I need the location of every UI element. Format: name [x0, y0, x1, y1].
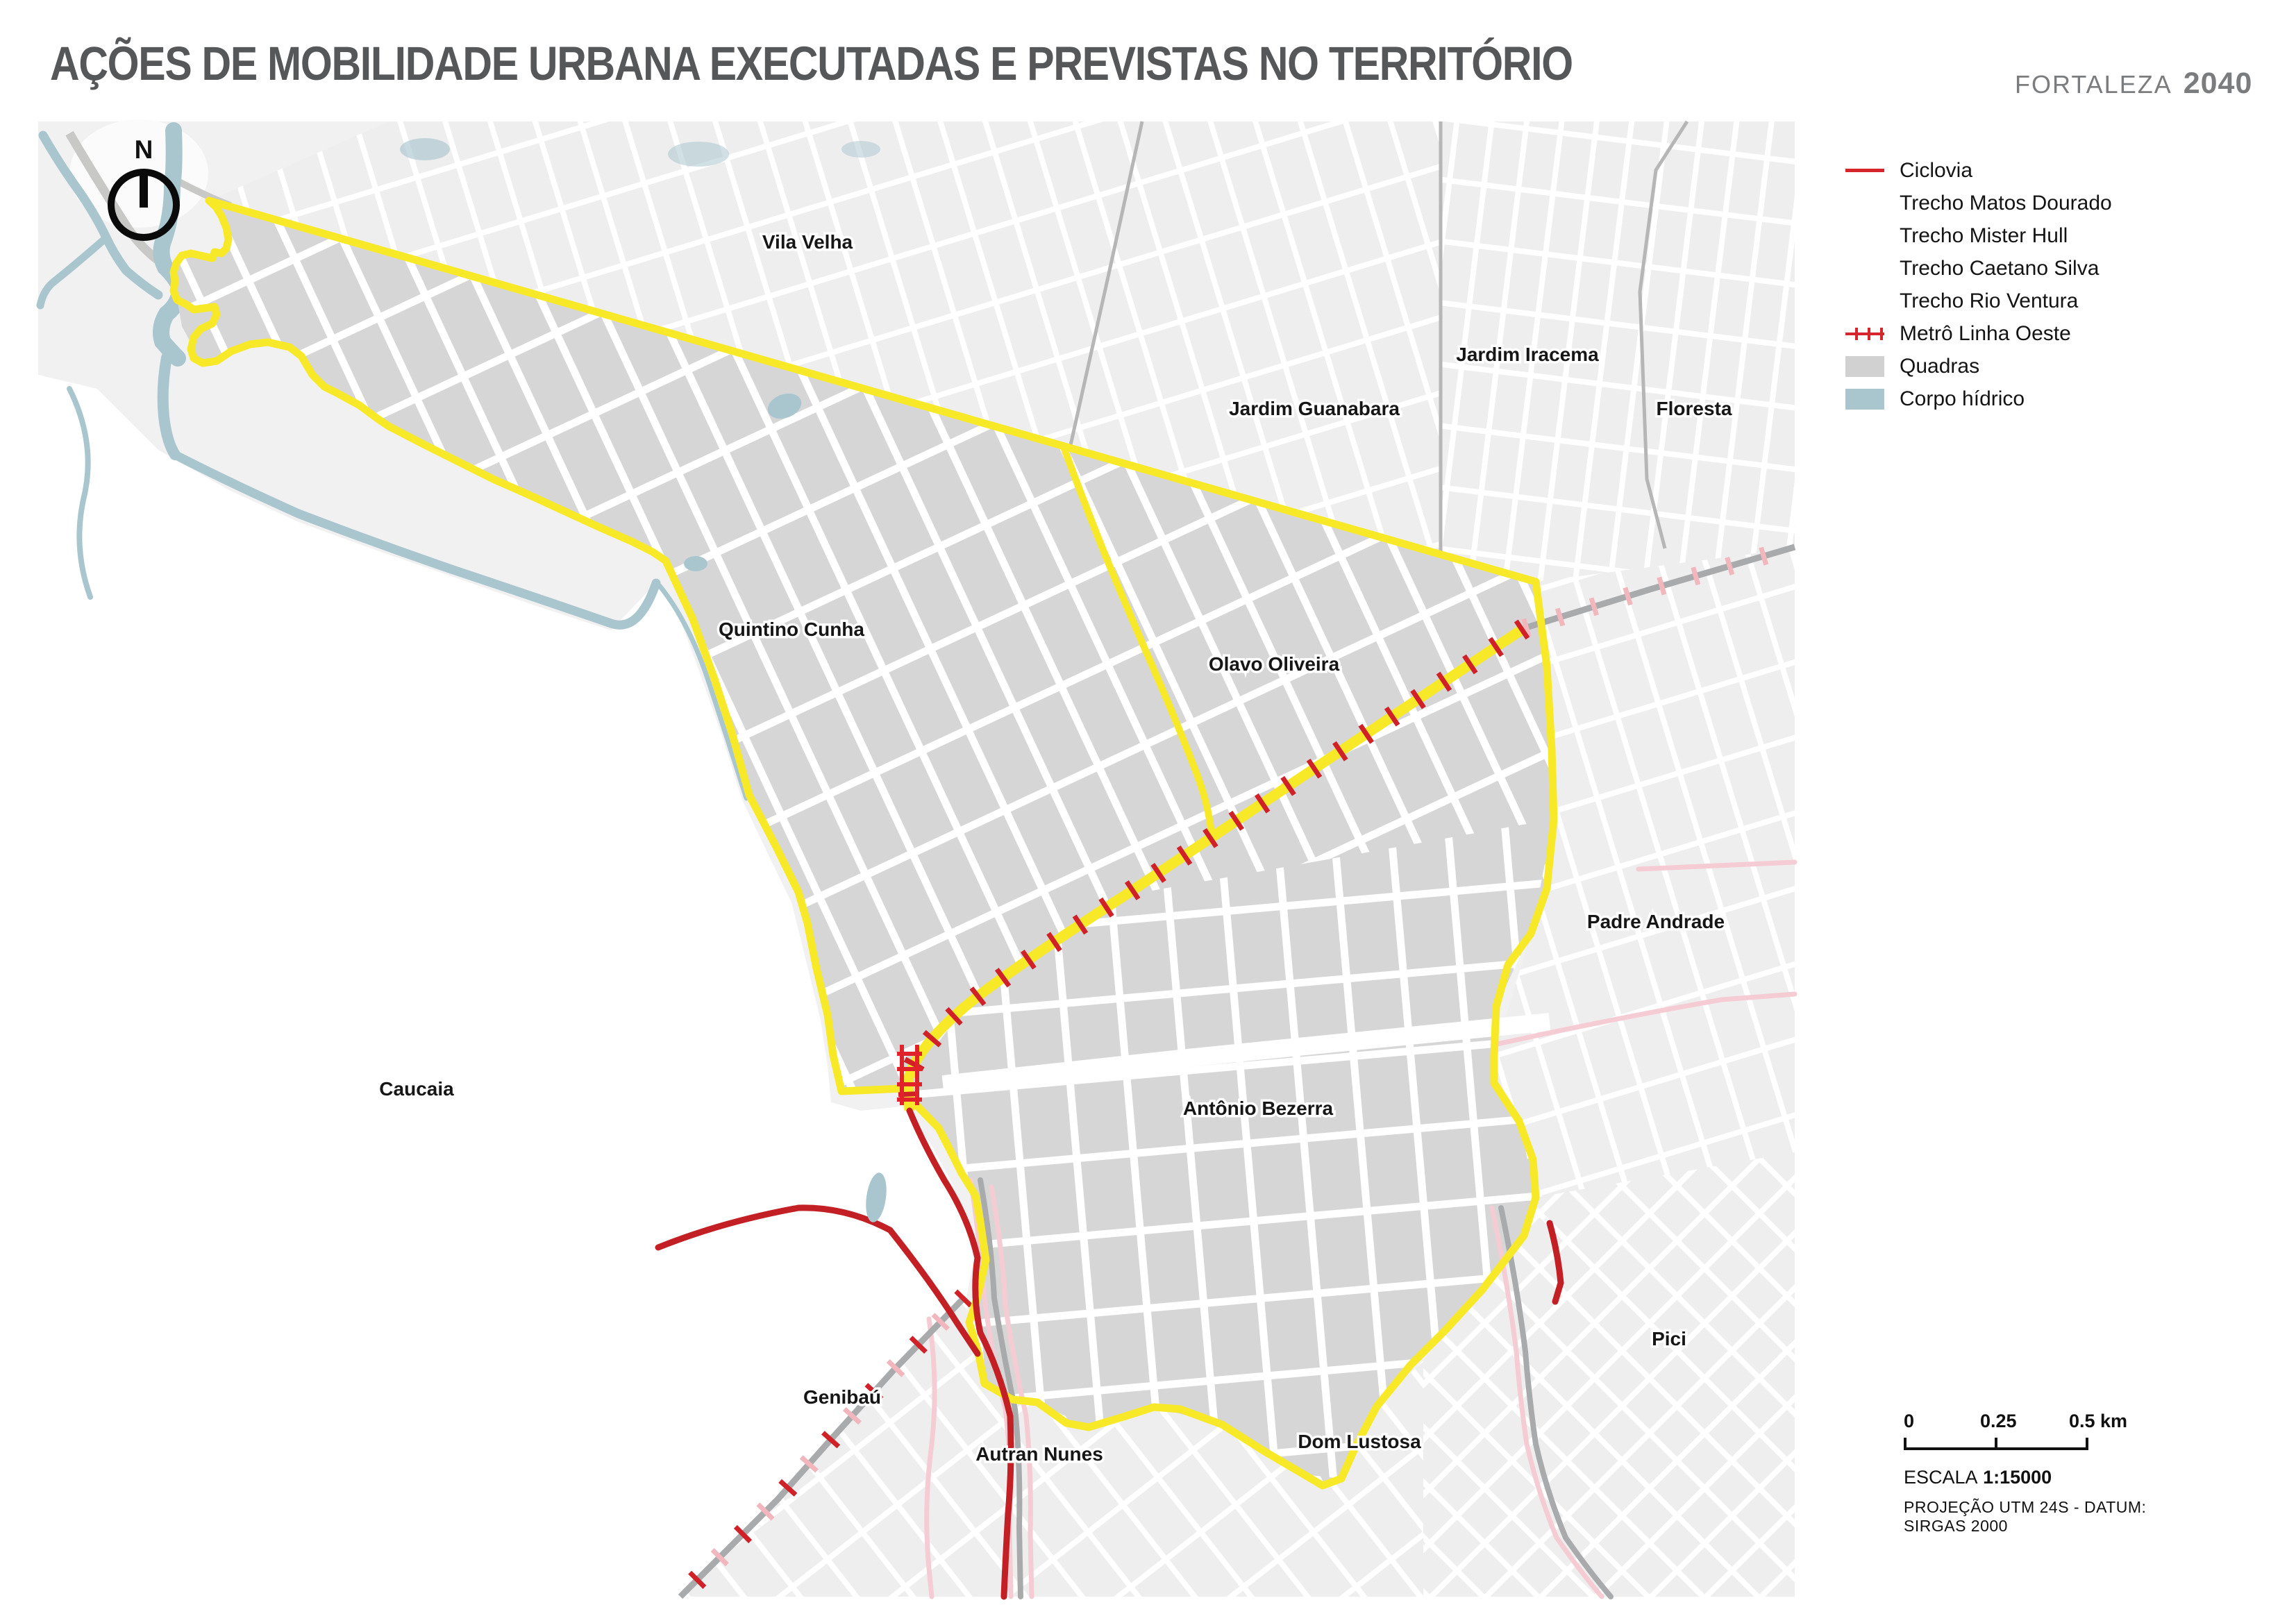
scale-text: ESCALA 1:15000 — [1904, 1467, 2195, 1488]
map-legend: Ciclovia Trecho Matos Dourado Trecho Mis… — [1845, 154, 2112, 415]
metro-ladder-swatch — [1845, 328, 1886, 340]
scale-bar-rule — [1904, 1437, 2088, 1450]
label-autran-nunes: Autran Nunes — [975, 1443, 1103, 1465]
scale-tick-05: 0.5 km — [2069, 1411, 2127, 1432]
label-genibau: Genibaú — [803, 1386, 881, 1408]
label-quintino-cunha: Quintino Cunha — [719, 619, 864, 640]
label-antonio-bezerra: Antônio Bezerra — [1183, 1098, 1334, 1119]
legend-item-trecho-matos-dourado: Trecho Matos Dourado — [1845, 187, 2112, 219]
label-floresta: Floresta — [1657, 398, 1732, 419]
legend-item-corpo-hidrico: Corpo hídrico — [1845, 382, 2112, 415]
scale-tick-0: 0 — [1904, 1411, 1914, 1432]
quadras-swatch — [1845, 356, 1886, 377]
label-caucaia: Caucaia — [379, 1078, 454, 1100]
scale-tick-025: 0.25 — [1980, 1411, 2017, 1432]
scale-bar: 0 0.25 0.5 km ESCALA 1:15000 PROJEÇÃO UT… — [1904, 1411, 2195, 1536]
legend-item-trecho-caetano-silva: Trecho Caetano Silva — [1845, 252, 2112, 285]
label-olavo-oliveira: Olavo Oliveira — [1209, 653, 1340, 675]
corpo-hidrico-swatch — [1845, 389, 1886, 410]
legend-item-trecho-mister-hull: Trecho Mister Hull — [1845, 219, 2112, 252]
north-letter: N — [135, 135, 153, 164]
label-jardim-guanabara: Jardim Guanabara — [1229, 398, 1400, 419]
legend-item-ciclovia: Ciclovia — [1845, 154, 2112, 187]
map-poster: N Vila Velha Jardim Iracema Jardim Guana… — [0, 0, 2296, 1623]
ciclovia-line-swatch — [1845, 169, 1886, 172]
label-padre-andrade: Padre Andrade — [1587, 911, 1725, 932]
page-title: AÇÕES DE MOBILIDADE URBANA EXECUTADAS E … — [50, 36, 1573, 91]
legend-item-quadras: Quadras — [1845, 350, 2112, 382]
legend-item-trecho-rio-ventura: Trecho Rio Ventura — [1845, 285, 2112, 317]
brand-logo: FORTALEZA 2040 — [2015, 67, 2252, 101]
brand-year: 2040 — [2184, 67, 2253, 101]
label-dom-lustosa: Dom Lustosa — [1298, 1431, 1421, 1452]
label-jardim-iracema: Jardim Iracema — [1456, 344, 1599, 365]
legend-item-metro-linha-oeste: Metrô Linha Oeste — [1845, 317, 2112, 350]
projection-text: PROJEÇÃO UTM 24S - DATUM: SIRGAS 2000 — [1904, 1498, 2195, 1536]
label-pici: Pici — [1652, 1328, 1686, 1349]
brand-name: FORTALEZA — [2015, 70, 2172, 99]
label-vila-velha: Vila Velha — [762, 231, 853, 253]
